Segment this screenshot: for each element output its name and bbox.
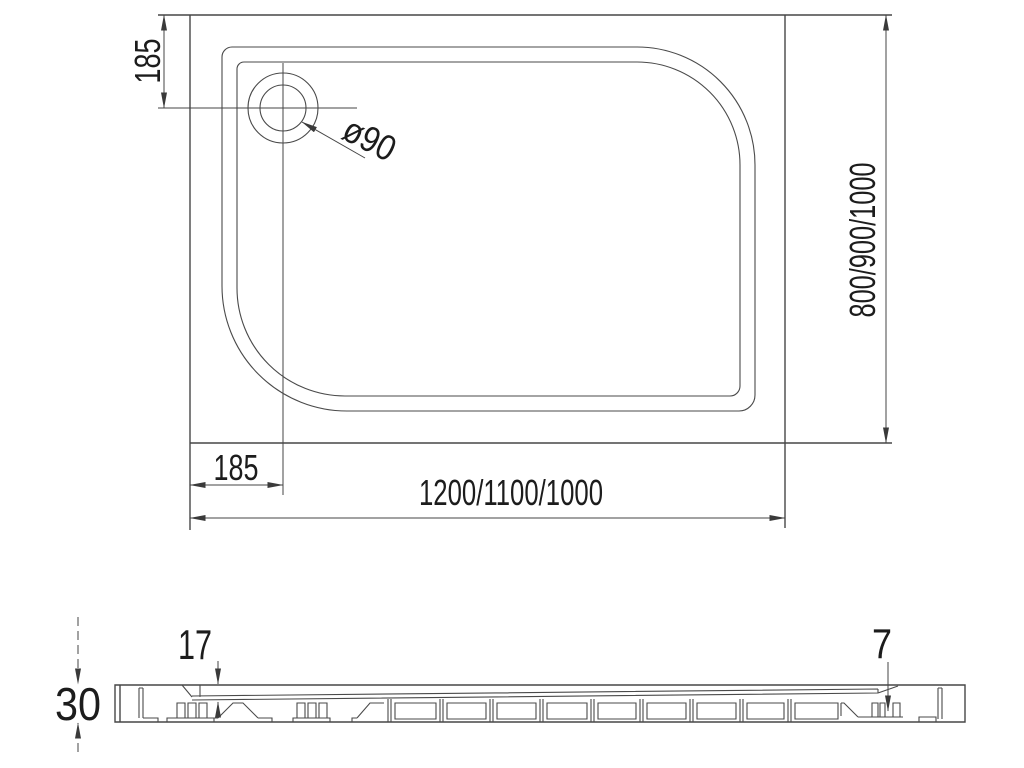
tray-outer-edge xyxy=(158,15,892,530)
section-acrylic-surface xyxy=(182,685,898,700)
section-left-ribs xyxy=(139,688,384,722)
label-drain-diameter: ø90 xyxy=(336,108,403,169)
label-drain-offset-vertical: 185 xyxy=(127,39,168,84)
section-floor-cells xyxy=(388,699,838,722)
label-depth-variants: 800/900/1000 xyxy=(842,163,883,318)
label-overall-height: 30 xyxy=(55,678,101,730)
label-inner-thickness: 17 xyxy=(178,621,212,668)
label-edge-thickness: 7 xyxy=(872,620,892,667)
shower-tray-technical-drawing: 185 ø90 800/900/1000 185 1200/1100/1000 xyxy=(0,0,1024,768)
drawing-canvas: 185 ø90 800/900/1000 185 1200/1100/1000 xyxy=(0,0,1024,768)
label-drain-offset-horizontal: 185 xyxy=(214,447,259,488)
tray-inner-rim xyxy=(222,47,755,411)
label-width-variants: 1200/1100/1000 xyxy=(419,472,603,513)
drain-centerlines xyxy=(158,63,357,495)
plan-view: 185 ø90 800/900/1000 185 1200/1100/1000 xyxy=(127,15,892,530)
section-view: 30 17 7 xyxy=(55,617,965,752)
